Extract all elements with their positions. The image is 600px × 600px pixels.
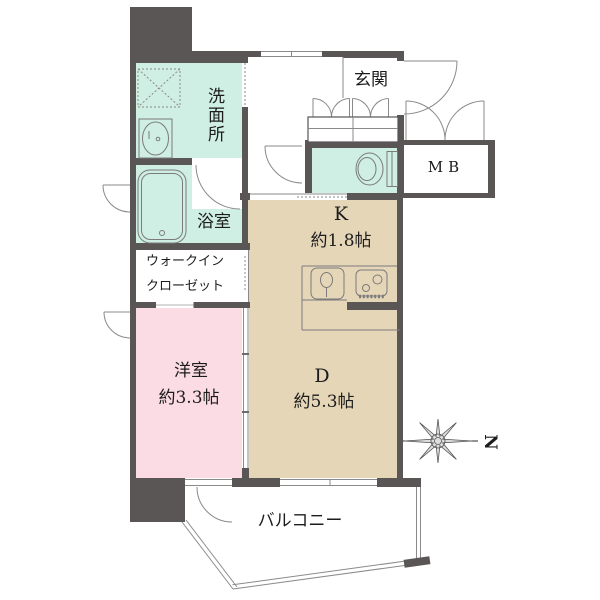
wic-label-line2: クローゼット [146, 280, 222, 295]
window-dining-balcony [280, 479, 377, 486]
dining-label: D [291, 366, 353, 388]
toilet-fixture [356, 152, 398, 187]
shoe-cabinet [308, 117, 398, 142]
casement-window-western [104, 312, 130, 338]
casement-window-bath [103, 185, 130, 212]
window-top [261, 51, 322, 57]
floor-plan: 洗面所 浴室 ウォークイン クローゼット 玄関 MB K 約1.8帖 D 約5.… [0, 0, 600, 600]
compass [403, 419, 478, 463]
bathtub [138, 170, 186, 243]
shoe-cabinet-doors [313, 99, 389, 118]
balcony-label: バルコニー [250, 512, 350, 532]
meter-box-doors [406, 101, 484, 140]
western-d-partition [242, 308, 249, 468]
washroom-opening [242, 63, 248, 107]
vanity-sink [139, 119, 172, 158]
meter-box-label: MB [414, 159, 478, 176]
toilet-door [265, 146, 302, 183]
balcony-railing [182, 487, 430, 589]
western-room-size-label: 約3.3帖 [149, 389, 229, 409]
balcony-door-opening [185, 478, 232, 487]
bathroom-label: 浴室 [188, 213, 240, 233]
wic-opening [154, 302, 197, 308]
washing-machine-pan [138, 69, 180, 107]
kitchen-sink [311, 268, 344, 299]
wic-label-line1: ウォークイン [146, 255, 222, 270]
bathroom-door [196, 165, 240, 209]
front-door [404, 61, 457, 114]
wic-d-partition [242, 250, 249, 302]
compass-north-label: N [477, 431, 499, 453]
balcony-door [197, 487, 232, 522]
entrance-label: 玄関 [343, 71, 399, 91]
western-room-label: 洋室 [160, 362, 222, 382]
plan-linework [0, 0, 600, 600]
kitchen-size-label: 約1.8帖 [301, 232, 381, 252]
washroom-label: 洗面所 [197, 84, 223, 146]
dining-size-label: 約5.3帖 [284, 393, 364, 413]
kitchen-label: K [310, 204, 372, 226]
hall-kitchen-opening [250, 193, 347, 200]
kitchen-counter [302, 266, 400, 330]
stove [356, 270, 387, 297]
